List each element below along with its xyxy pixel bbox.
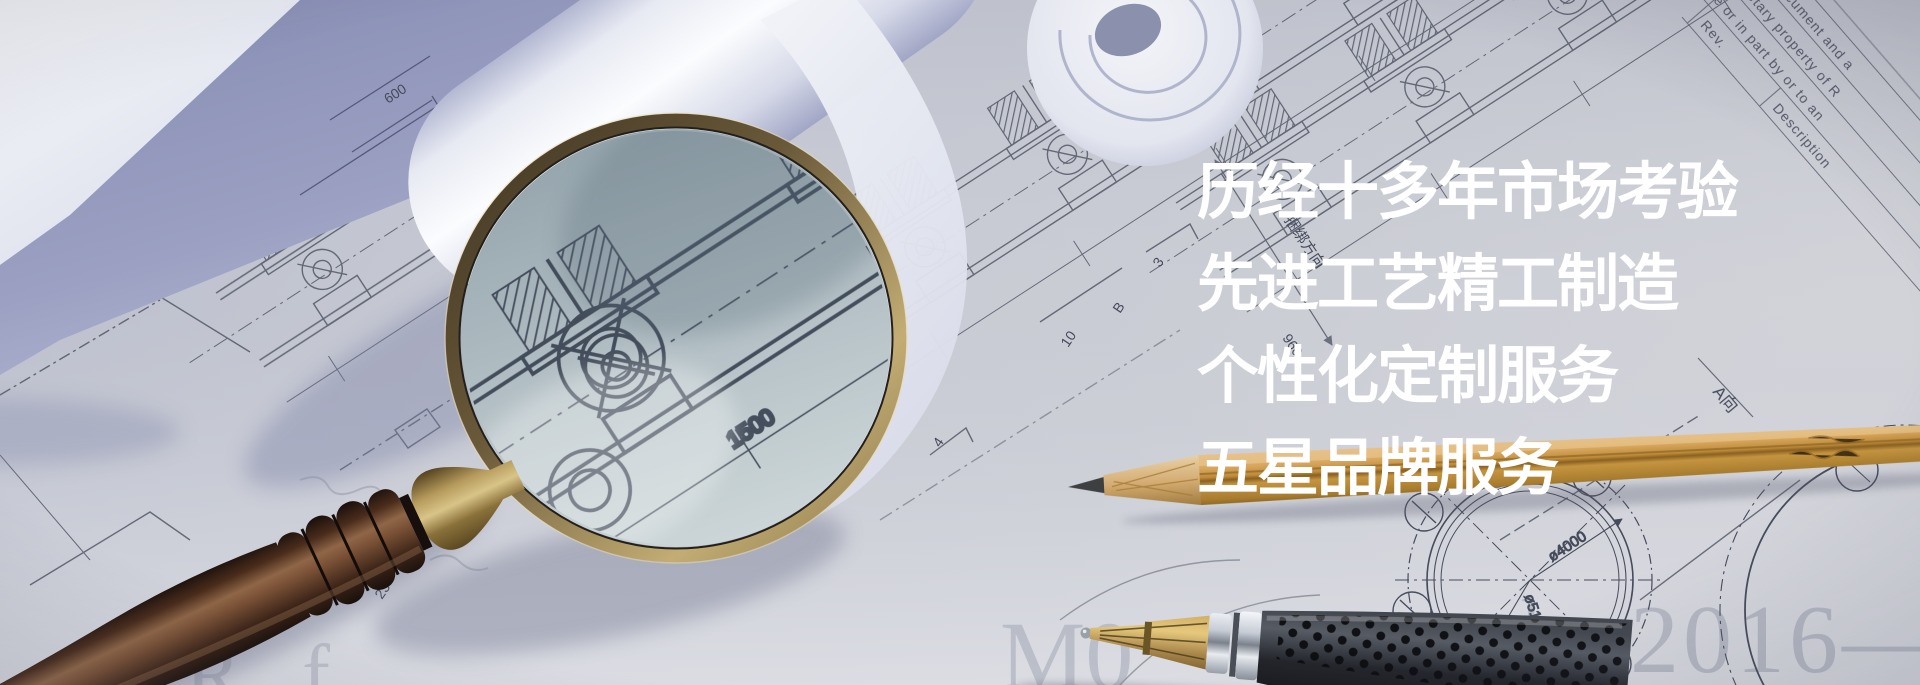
hero-slogans: 历经十多年市场考验 先进工艺精工制造 个性化定制服务 五星品牌服务: [1197, 146, 1737, 514]
slogan-line-2: 先进工艺精工制造: [1197, 238, 1737, 330]
slogan-line-1: 历经十多年市场考验: [1197, 146, 1737, 238]
slogan-line-3: 个性化定制服务: [1197, 330, 1737, 422]
slogan-line-4: 五星品牌服务: [1197, 422, 1737, 514]
hero-banner: 3900 ø 3 B 10 4 23 捆绑方向 960 A向 B 600: [0, 0, 1920, 685]
